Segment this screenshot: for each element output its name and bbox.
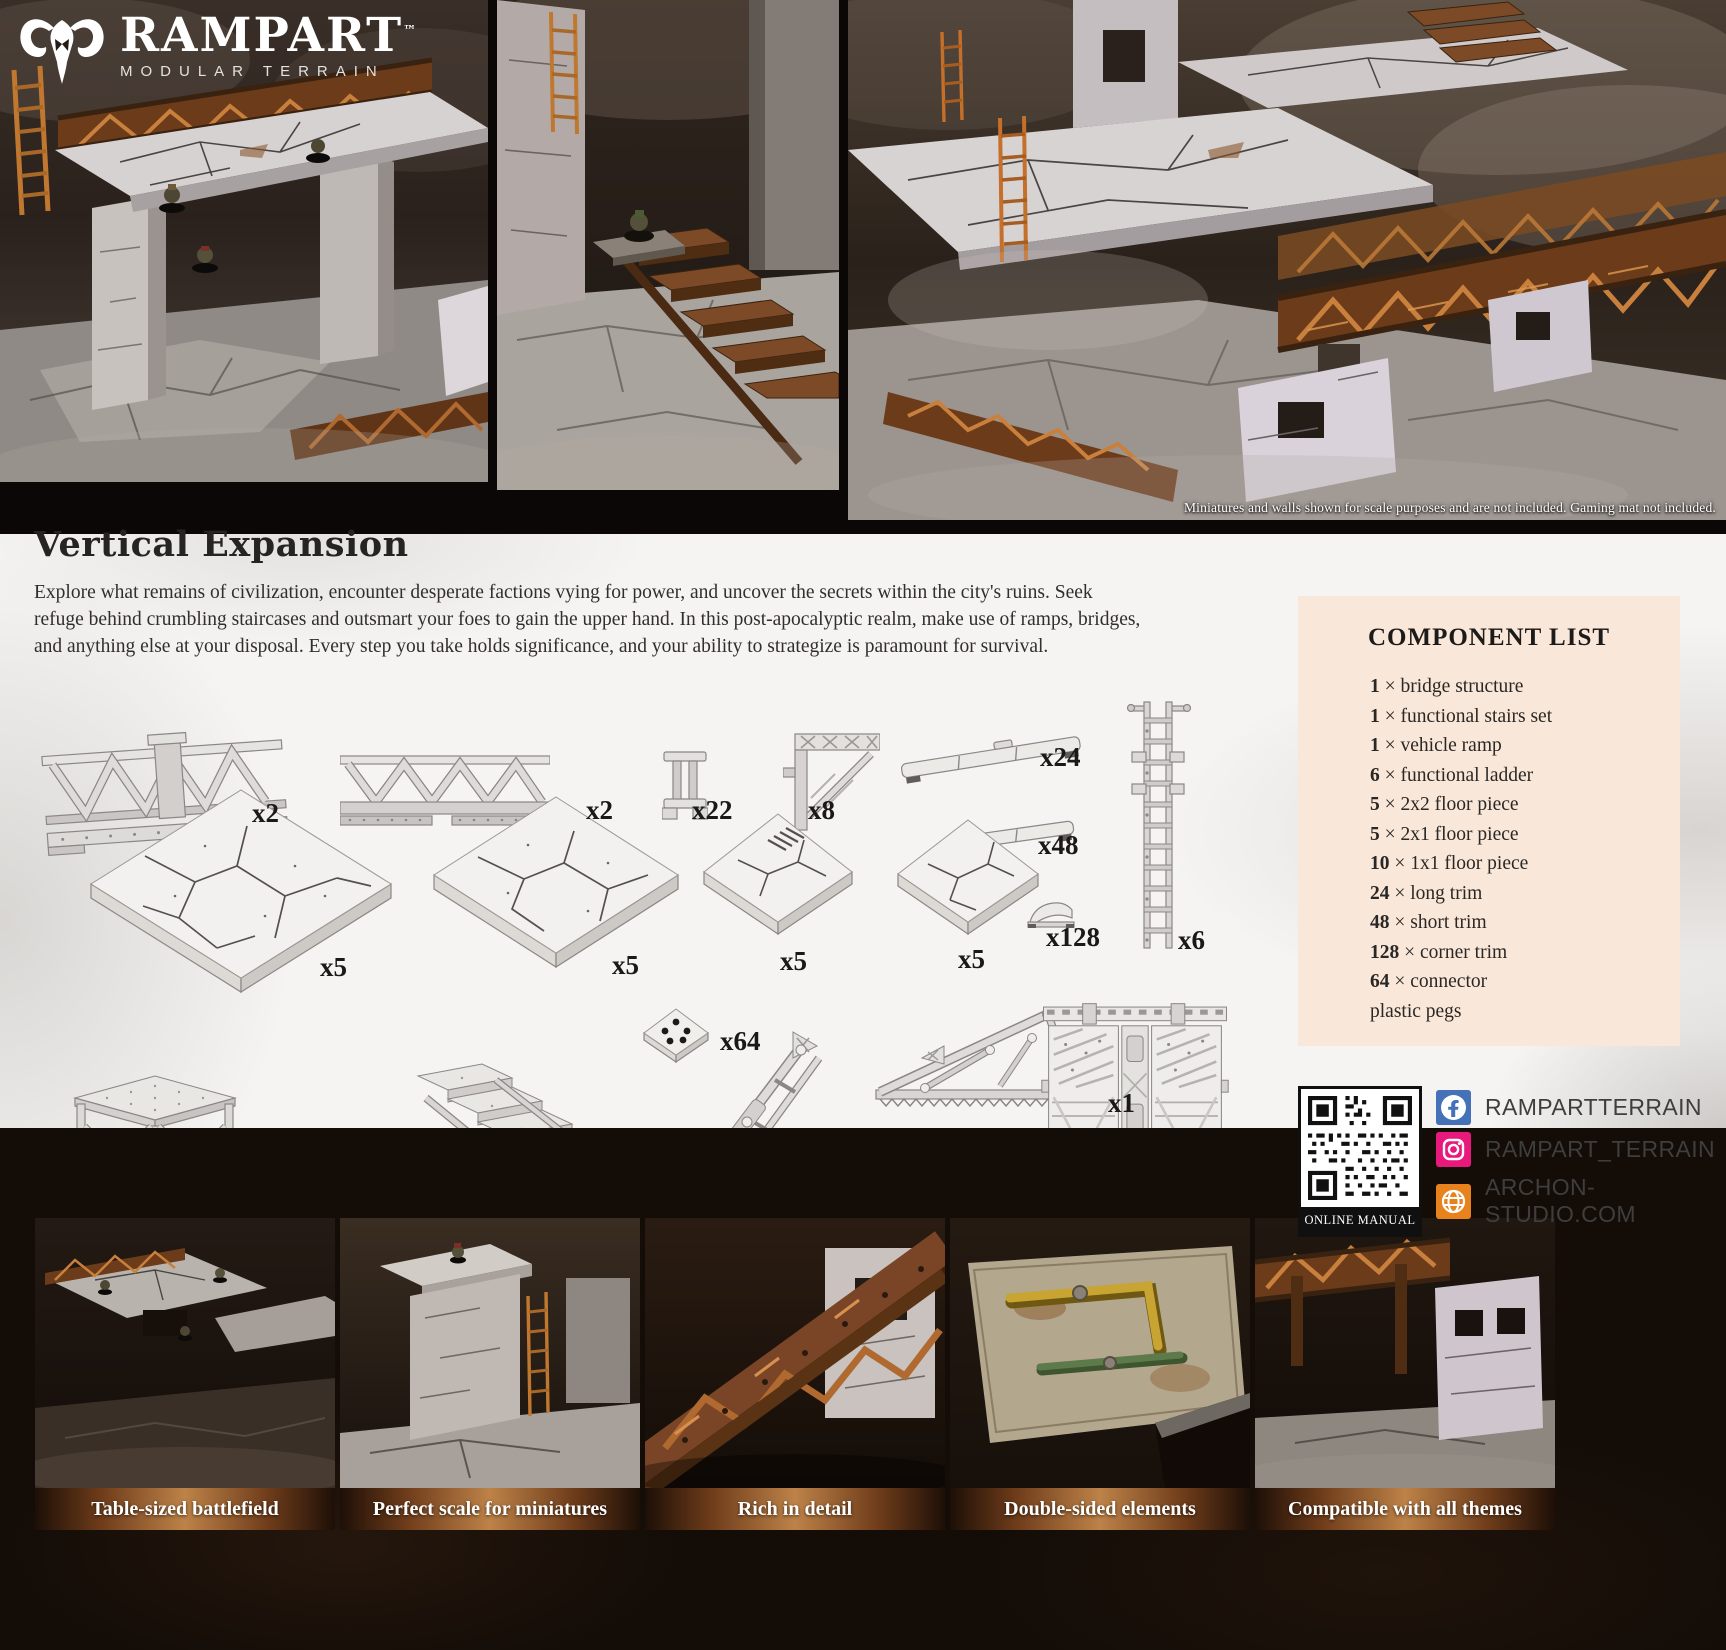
brand-tagline: MODULAR TERRAIN [120, 63, 416, 80]
facebook-icon [1436, 1090, 1471, 1125]
brand-name: RAMPART™ [120, 12, 416, 59]
feature-photo-themes [1255, 1218, 1555, 1488]
component-list-item: 5 × 2x1 floor piece [1370, 820, 1680, 850]
component-list-item: 10 × 1x1 floor piece [1370, 849, 1680, 879]
feature-photo-scale [340, 1218, 640, 1488]
feature-caption: Double-sided elements [950, 1488, 1250, 1530]
component-qty-label: x5 [958, 944, 985, 975]
component-qty-label: x5 [780, 946, 807, 977]
brand-logo: RAMPART™ MODULAR TERRAIN [16, 12, 416, 90]
qr-pattern-icon [1308, 1096, 1412, 1200]
feature-caption: Table-sized battlefield [35, 1488, 335, 1530]
component-floor-1x1b-figure [892, 816, 1044, 938]
instagram-link[interactable]: RAMPART_TERRAIN [1436, 1132, 1715, 1167]
component-list-title: COMPONENT LIST [1298, 624, 1680, 652]
globe-icon [1436, 1184, 1471, 1219]
component-qty-label: x2 [586, 795, 613, 826]
feature-caption: Rich in detail [645, 1488, 945, 1530]
scale-disclaimer: Miniatures and walls shown for scale pur… [1184, 500, 1716, 516]
qr-code[interactable]: ONLINE MANUAL [1298, 1086, 1422, 1237]
component-qty-label: x8 [808, 795, 835, 826]
component-list-item: 1 × bridge structure [1370, 672, 1680, 702]
component-list-item: 1 × functional stairs set [1370, 702, 1680, 732]
component-qty-label: x6 [1178, 925, 1205, 956]
ram-skull-icon [16, 12, 108, 90]
component-qty-label: x64 [720, 1026, 761, 1057]
component-floor-1x1a-figure [698, 810, 858, 940]
intro-paragraph: Explore what remains of civilization, en… [34, 580, 1142, 661]
component-list-item: 6 × functional ladder [1370, 761, 1680, 791]
component-ladder-figure [1126, 696, 1192, 954]
hero-photos: RAMPART™ MODULAR TERRAIN Miniatures and … [0, 0, 1726, 534]
component-qty-label: x22 [692, 795, 733, 826]
trademark: ™ [403, 23, 416, 38]
feature-photo-detail [645, 1218, 945, 1488]
component-list-item: 1 × vehicle ramp [1370, 731, 1680, 761]
component-qty-label: x1 [1108, 1088, 1135, 1119]
component-list: 1 × bridge structure 1 × functional stai… [1370, 672, 1680, 1026]
component-floor-2x1-figure [428, 793, 684, 975]
feature-caption: Compatible with all themes [1255, 1488, 1555, 1530]
hero-photo-2 [497, 0, 839, 490]
instagram-handle: RAMPART_TERRAIN [1485, 1136, 1715, 1163]
feature-photo-battlefield [35, 1218, 335, 1488]
component-qty-label: x128 [1046, 922, 1100, 953]
component-list-item: plastic pegs [1370, 997, 1680, 1027]
page-title: Vertical Expansion [34, 524, 409, 565]
feature-caption: Perfect scale for miniatures [340, 1488, 640, 1530]
component-list-item: 64 × connector [1370, 967, 1680, 997]
component-list-item: 5 × 2x2 floor piece [1370, 790, 1680, 820]
component-qty-label: x5 [612, 950, 639, 981]
feature-photo-doublesided [950, 1218, 1250, 1488]
rampart-product-sheet: RAMPART™ MODULAR TERRAIN Miniatures and … [0, 0, 1726, 1650]
component-qty-label: x48 [1038, 830, 1079, 861]
hero-photo-3 [848, 0, 1726, 520]
component-qty-label: x24 [1040, 742, 1081, 773]
website-url: ARCHON-STUDIO.COM [1485, 1174, 1726, 1228]
component-qty-label: x5 [320, 952, 347, 983]
website-link[interactable]: ARCHON-STUDIO.COM [1436, 1174, 1726, 1228]
component-list-item: 48 × short trim [1370, 908, 1680, 938]
component-list-item: 128 × corner trim [1370, 938, 1680, 968]
component-qty-label: x2 [252, 798, 279, 829]
component-list-panel: COMPONENT LIST 1 × bridge structure 1 × … [1298, 596, 1680, 1046]
component-floor-2x2-figure [85, 786, 397, 998]
facebook-link[interactable]: RAMPARTTERRAIN [1436, 1090, 1702, 1125]
qr-label: ONLINE MANUAL [1301, 1207, 1419, 1234]
instagram-icon [1436, 1132, 1471, 1167]
component-list-item: 24 × long trim [1370, 879, 1680, 909]
facebook-handle: RAMPARTTERRAIN [1485, 1094, 1702, 1121]
